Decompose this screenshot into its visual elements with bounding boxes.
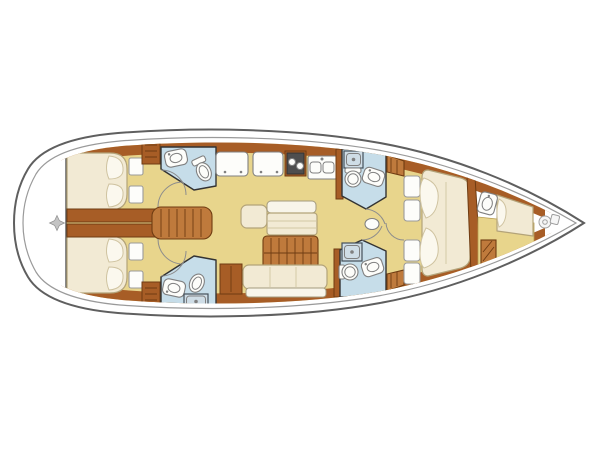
wardrobe-locker [404, 200, 420, 221]
yacht-floor-plan-svg [0, 0, 600, 450]
saloon-port-settee [267, 213, 317, 235]
wardrobe-locker [404, 263, 420, 284]
engine-box-top [67, 209, 162, 222]
handle-dot [240, 171, 243, 174]
galley-worktop [253, 152, 283, 176]
saloon-side-seat [241, 205, 267, 228]
corridor-stool [365, 219, 379, 230]
toilet-icon [345, 168, 361, 187]
shower-icon [344, 151, 363, 168]
saloon-port-settee-back [267, 201, 316, 213]
engine-box-bottom [67, 224, 162, 237]
interior-layout [10, 128, 590, 318]
wardrobe-locker [404, 176, 420, 197]
handle-dot [276, 171, 279, 174]
handle-dot [224, 171, 227, 174]
wardrobe-locker [404, 240, 420, 261]
galley-double-sink-icon [308, 156, 337, 179]
shower-icon [342, 243, 362, 261]
handle-dot [260, 171, 263, 174]
saloon-starboard-settee-back [246, 288, 326, 297]
toilet-icon [339, 264, 358, 280]
saloon-starboard-settee [243, 265, 327, 289]
galley-worktop [216, 152, 248, 176]
yacht-layout-diagram [0, 0, 600, 450]
storage-hatch [129, 243, 143, 260]
storage-hatch [129, 271, 143, 288]
storage-hatch [129, 186, 143, 203]
storage-hatch [129, 158, 143, 175]
stove-icon [285, 151, 306, 176]
